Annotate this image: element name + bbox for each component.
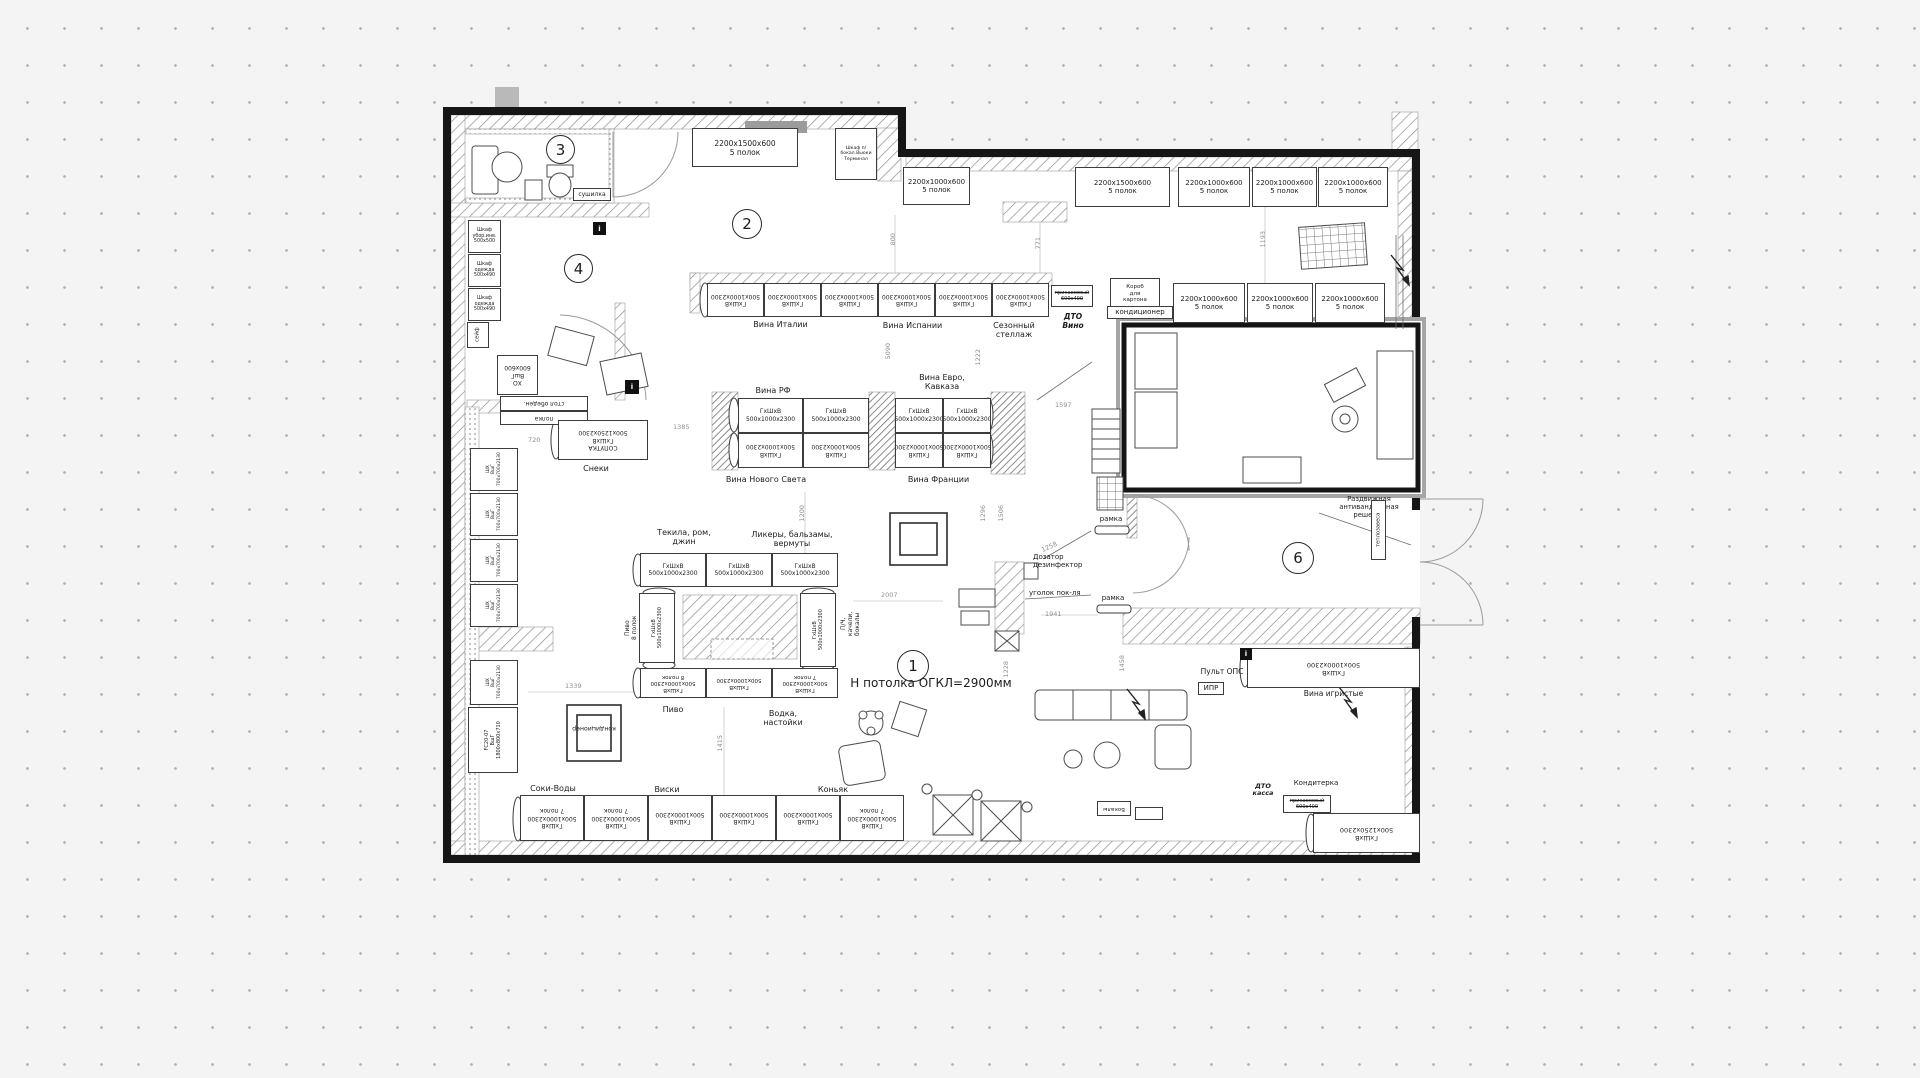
dim-720: 720 [528,436,540,444]
room-number-text: 3 [556,141,566,159]
pch-side-label: П/Ч, качели, бокалы [841,599,875,649]
spirits-rack-cell: ГхШхВ 500x1000x2300 [706,668,772,698]
dim-1339: 1339 [565,682,582,690]
wall-shelf-2200x1000: 2200x1000x600 5 полок [1252,167,1317,207]
dim-2007: 2007 [881,591,898,599]
dryer-box: сушилка [573,188,611,201]
spirits-rack-side: ГхШхВ 500x1000x2300 [800,593,836,667]
ramka-label: рамка [1091,515,1131,523]
info-marker-icon: i [625,380,639,394]
dto-wine-label: ДТО Вино [1055,313,1091,330]
soputka-rack: СОПУТКА ГхШхВ 500x1250x2300 [558,420,648,460]
wall-shelf-2200x1500: 2200x1500x600 5 полок [1075,167,1170,207]
room-number-text: 2 [742,215,752,233]
room-number-3: 3 [546,135,575,164]
dim-5090: 5090 [884,343,892,360]
wine-rack-cell: ГхШхВ 500x1000x2300 [943,398,991,433]
fridge-fc20-07: FC20-07 ВшГ 1800x800x710 [468,707,518,773]
armchair-icon [1155,725,1191,769]
dim-1941: 1941 [1045,610,1062,618]
juice-rack-cell: ГхШхВ 500x1000x2300 7 полок [584,795,648,841]
small-counter-box [1135,807,1163,820]
vodka-label: Водка, настойки [751,709,815,727]
beer-label: Пиво [653,705,693,714]
security-panel-label: Пульт ОПС [1196,668,1248,677]
room-number-4: 4 [564,254,593,283]
dim-1597: 1597 [1055,401,1072,409]
snacks-label: Снеки [568,464,624,473]
wine-italy-label: Вина Италии [743,320,818,329]
fridge-label: ШХ ВшГ 700x700x2130 [486,453,502,487]
spirits-rack-cell: ГхШхВ 500x1000x2300 [772,553,838,587]
wine-rack-cell: ГхШхВ 500x1000x2300 [764,283,821,317]
sparkling-label: Вина игристые [1281,690,1386,699]
sanitizer-label: Дозатор дезинфектор [1033,553,1095,569]
gondola-base-icon [711,639,773,659]
juice-rack-cell: ГхШхВ 500x1000x2300 7 полок [520,795,584,841]
dim-1228: 1228 [1002,661,1010,678]
wine-euro-label: Вина Евро, Кавказа [911,373,973,391]
floor-plan-canvas: { "drawing": { "ceiling_note": "Н потолк… [0,0,1920,1078]
dining-table-label: стол обеден. [500,396,588,411]
dim-771: 771 [1034,237,1042,249]
fridge-label: ШХ ВшГ 700x700x2130 [486,544,502,578]
room-number-text: 4 [574,260,584,278]
fridge-shx: ШХ ВшГ 700x700x2130 [470,539,518,582]
sparkling-rack: ГхШхВ 500x1000x2300 [1247,648,1420,688]
security-grille-label: Раздвижная антивандальная решетка [1313,496,1425,519]
wine-rack-cell: ГхШхВ 500x1000x2300 [803,433,869,468]
whiskey-label: Виски [643,785,691,794]
fridge-label: ШХ ВшГ 700x700x2130 [486,666,502,700]
beer-side-label: Пиво 8 полок [625,595,638,661]
safe-box: сейф [467,322,489,348]
fridge-xo: ХО ВшГ 600x600 [497,355,538,395]
wine-rack-cell: ГхШхВ 500x1000x2300 [707,283,764,317]
info-marker-icon: i [593,222,606,235]
room-number-text: 1 [908,657,918,675]
ramka-label: рамка [1093,594,1133,602]
dim-1506: 1506 [997,505,1005,522]
cabinet-inventory: Шкаф убор.инв. 500x500 [468,220,501,253]
info-marker-icon: i [1240,648,1252,660]
spirits-rack-cell: ГхШхВ 500x1000x2300 [640,553,706,587]
air-conditioner-label: кондиционер [1107,306,1173,319]
spirits-rack-cell: ГхШхВ 500x1000x2300 [706,553,772,587]
wall-shelf-2200x1000: 2200x1000x600 5 полок [903,167,970,205]
fridge-shx: ШХ ВшГ 700x700x2130 [470,584,518,627]
dim-1415: 1415 [716,735,724,752]
fridge-shx: ШХ ВшГ 700x700x2130 [470,448,518,491]
fridge-shx: ШХ ВшГ 700x700x2130 [470,660,518,705]
cognac-label: Коньяк [809,785,857,794]
air-conditioner-label: кондиционер [567,725,621,732]
crossed-counter-box: прикассовый 600x400 [1283,795,1331,813]
glass-closet: Шкаф п/ бокал.Вьюки Терминал [835,128,877,180]
sink-icon [525,180,542,200]
wine-rack-cell: ГхШхВ 500x1000x2300 [738,433,803,468]
glasses-box: Бокалы [1097,801,1131,816]
wall-shelf-2200x1000: 2200x1000x600 5 полок [1318,167,1388,207]
konditerka-rack: ГхШхВ 500x1250x2300 [1313,813,1420,853]
wall-shelf-2200x1000: 2200x1000x600 5 полок [1178,167,1250,207]
dim-800: 800 [889,233,897,245]
wine-spain-label: Вина Испании [875,321,950,330]
wine-rack-cell: ГхШхВ 500x1000x2300 [738,398,803,433]
cabinet-clothes: Шкаф одежда 500x490 [468,254,501,287]
beer-rack-side: ГхШхВ 500x1000x2300 [639,593,675,663]
wall-shelf-2200x1000: 2200x1000x600 5 полок [1173,283,1245,323]
washer-drum-icon [492,152,522,182]
wall-shelf-2200x1000: 2200x1000x600 5 полок [1247,283,1313,323]
cognac-rack-cell: ГхШхВ 500x1000x2300 [776,795,840,841]
dim-1385: 1385 [673,423,690,431]
vodka-rack-cell: ГхШхВ 500x1000x2300 7 полок [772,668,838,698]
wine-rack-cell: ГхШхВ 500x1000x2300 [895,433,943,468]
konditerka-label: Кондитерка [1286,779,1346,787]
pallet-grid-icon [1299,223,1368,270]
wine-rack-cell: ГхШхВ 500x1000x2300 [895,398,943,433]
fridge-label: FC20-07 ВшГ 1800x800x710 [484,721,502,759]
tequila-label: Текила, ром, джин [651,528,717,546]
wine-new-world-label: Вина Нового Света [711,475,821,484]
wine-rf-label: Вина РФ [743,386,803,395]
wall-shelf-2200x1500: 2200x1500x600 5 полок [692,128,798,167]
juices-label: Соки-Воды [521,784,585,793]
toilet-bowl-icon [549,173,571,197]
beer-rack-cell: ГхШхВ 500x1000x2300 8 полок [640,668,706,698]
basket-grid-icon [1097,477,1123,510]
heat-curtain-box: теплозавеса [1371,500,1386,560]
wine-rack-cell: ГхШхВ 500x1000x2300 [935,283,992,317]
whiskey-rack-cell: ГхШхВ 500x1000x2300 [712,795,776,841]
fridge-label: ШХ ВшГ 700x700x2130 [486,498,502,532]
wine-rack-cell: ГхШхВ 500x1000x2300 [803,398,869,433]
ceiling-height-note: Н потолка ОГКЛ=2900мм [841,677,1021,691]
wine-rack-cell: ГхШхВ 500x1000x2300 [943,433,991,468]
crossed-counter-box: прикассовый 600x400 [1051,285,1093,307]
dim-1193: 1193 [1259,231,1267,248]
dim-1296: 1296 [979,505,987,522]
walls-layer [443,107,1423,863]
dim-1222: 1222 [974,349,982,366]
wall-shelf-2200x1000: 2200x1000x600 5 полок [1315,283,1385,323]
floor-plan: 3 2 4 1 6 2200x1500x600 5 полок Шкаф п/ … [443,107,1423,863]
liquors-label: Ликеры, бальзамы, вермуты [745,530,839,548]
fridge-shx: ШХ ВшГ 700x700x2130 [470,493,518,536]
fridge-label: ШХ ВшГ 700x700x2130 [486,589,502,623]
room-number-2: 2 [732,209,762,239]
wine-rack-cell: ГхШхВ 500x1000x2300 [821,283,878,317]
round-table-icon [1094,742,1120,768]
whiskey-rack-cell: ГхШхВ 500x1000x2300 [648,795,712,841]
dto-kassa-label: ДТО касса [1247,783,1279,798]
ipr-box: ИПР [1198,682,1224,695]
armchair-icon [838,740,886,787]
customer-corner-label: уголок пок-ля [1029,589,1095,597]
cognac-rack-cell: ГхШхВ 500x1000x2300 7 полок [840,795,904,841]
cabinet-clothes: Шкаф одежда 500x490 [468,288,501,321]
room-number-text: 6 [1293,549,1303,567]
wine-france-label: Вина Франции [901,475,976,484]
dim-1200: 1200 [798,505,806,522]
room-number-6: 6 [1282,542,1314,574]
wine-rack-cell: ГхШхВ 500x1000x2300 [992,283,1049,317]
dim-1458: 1458 [1118,655,1126,672]
wine-rack-cell: ГхШхВ 500x1000x2300 [878,283,935,317]
seasonal-rack-label: Сезонный стеллаж [989,321,1039,339]
